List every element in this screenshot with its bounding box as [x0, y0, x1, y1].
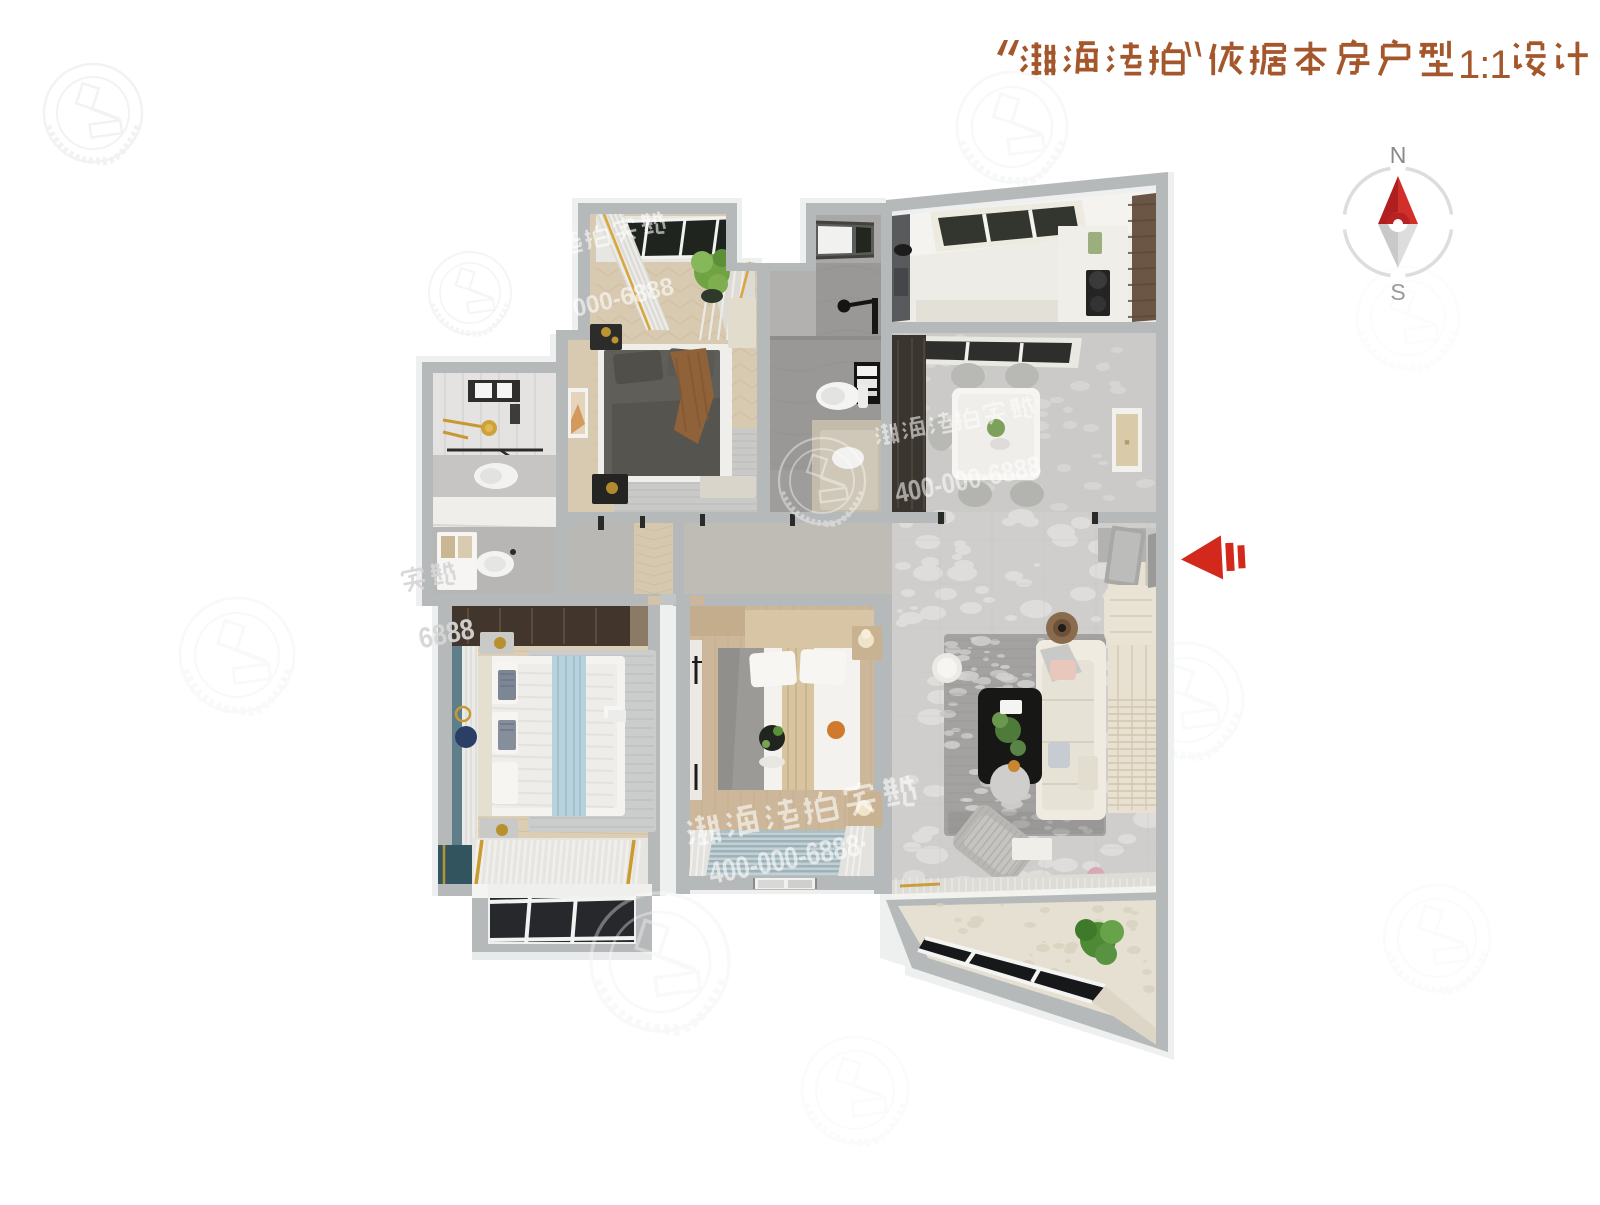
svg-text:1:1: 1:1 — [1458, 43, 1511, 87]
svg-text:■: ■ — [1124, 437, 1129, 447]
svg-text:S: S — [1390, 279, 1405, 305]
svg-text:N: N — [1390, 142, 1407, 168]
